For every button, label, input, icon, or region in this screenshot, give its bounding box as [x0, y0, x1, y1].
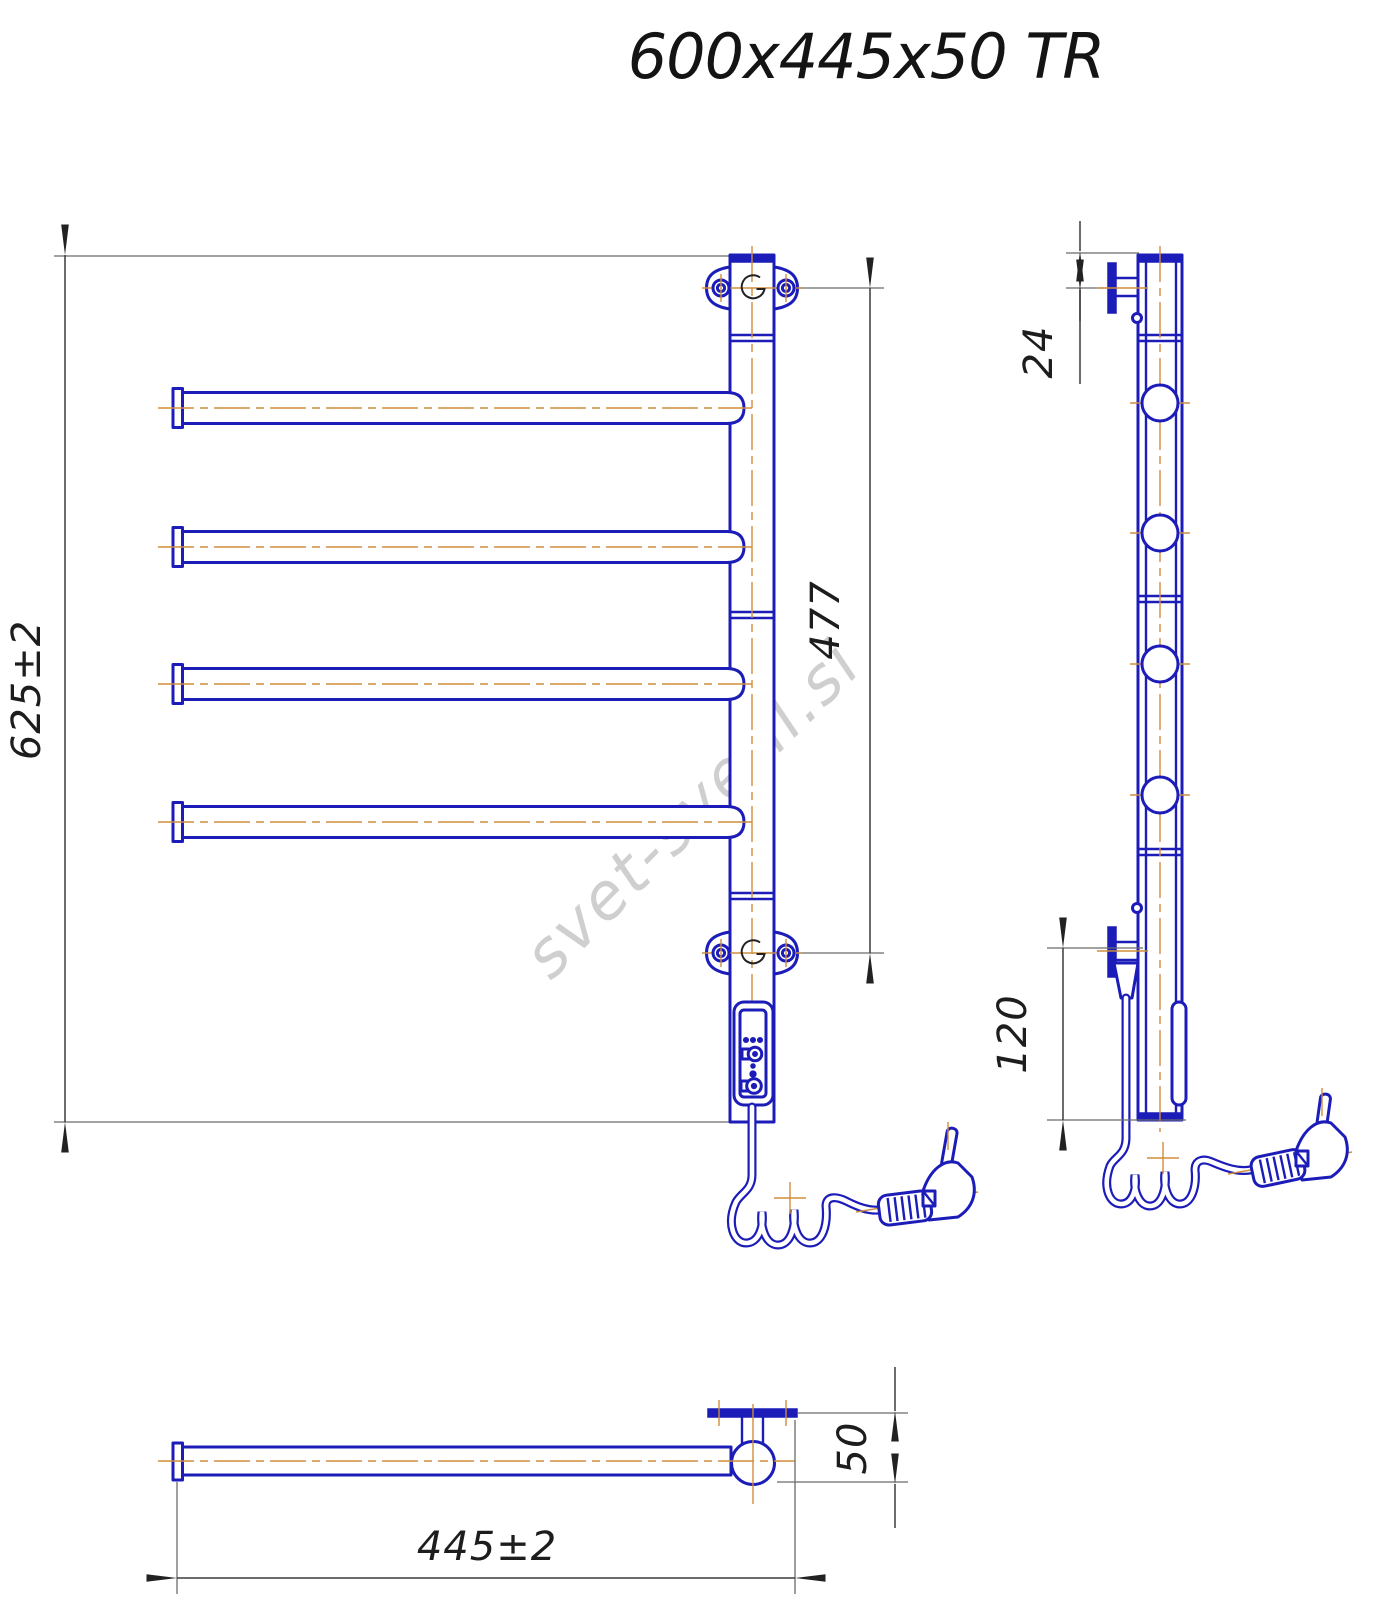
drawing-sheet: 600x445x50 TR svet-svetil.si	[0, 0, 1378, 1600]
dimension-label-bracket-span: 477	[803, 580, 849, 659]
dimension-overall-height: 625±2	[4, 255, 65, 1122]
dimension-label-overall-height: 625±2	[4, 620, 50, 760]
front-view: 625±2 477	[4, 246, 978, 1245]
dimension-label-cable-offset: 120	[990, 994, 1036, 1073]
bottom-view: 50 445±2	[158, 1367, 908, 1594]
control-panel	[734, 1002, 773, 1105]
dimension-bracket-span: 477	[803, 288, 870, 953]
side-view: 24 120	[990, 221, 1352, 1206]
cord-bushing	[1114, 963, 1138, 998]
rung-cross-section	[1142, 515, 1178, 551]
indicator-led-icon	[758, 1038, 763, 1043]
drawing-title: 600x445x50 TR	[628, 20, 1105, 93]
indicator-led-icon	[751, 1038, 756, 1043]
technical-drawing: 600x445x50 TR svet-svetil.si	[0, 0, 1378, 1600]
dimension-top-offset: 24	[1016, 221, 1080, 384]
towel-bar-3	[158, 665, 752, 704]
screw-icon	[1133, 904, 1142, 913]
rung-cross-section	[1142, 646, 1178, 682]
dimension-label-overall-width: 445±2	[417, 1524, 557, 1570]
rung-cross-section	[1142, 385, 1178, 421]
towel-bar-4	[158, 803, 752, 842]
dimension-label-top-offset: 24	[1016, 326, 1062, 379]
rung-cross-section	[1142, 777, 1178, 813]
dimension-label-depth: 50	[830, 1422, 876, 1475]
control-panel-side	[1172, 1002, 1186, 1105]
towel-bar-2	[158, 528, 752, 567]
indicator-led-icon	[744, 1038, 749, 1043]
screw-icon	[1133, 314, 1142, 323]
power-cord	[731, 1107, 880, 1245]
towel-bar-1	[158, 389, 752, 428]
dimension-depth: 50	[777, 1367, 908, 1528]
